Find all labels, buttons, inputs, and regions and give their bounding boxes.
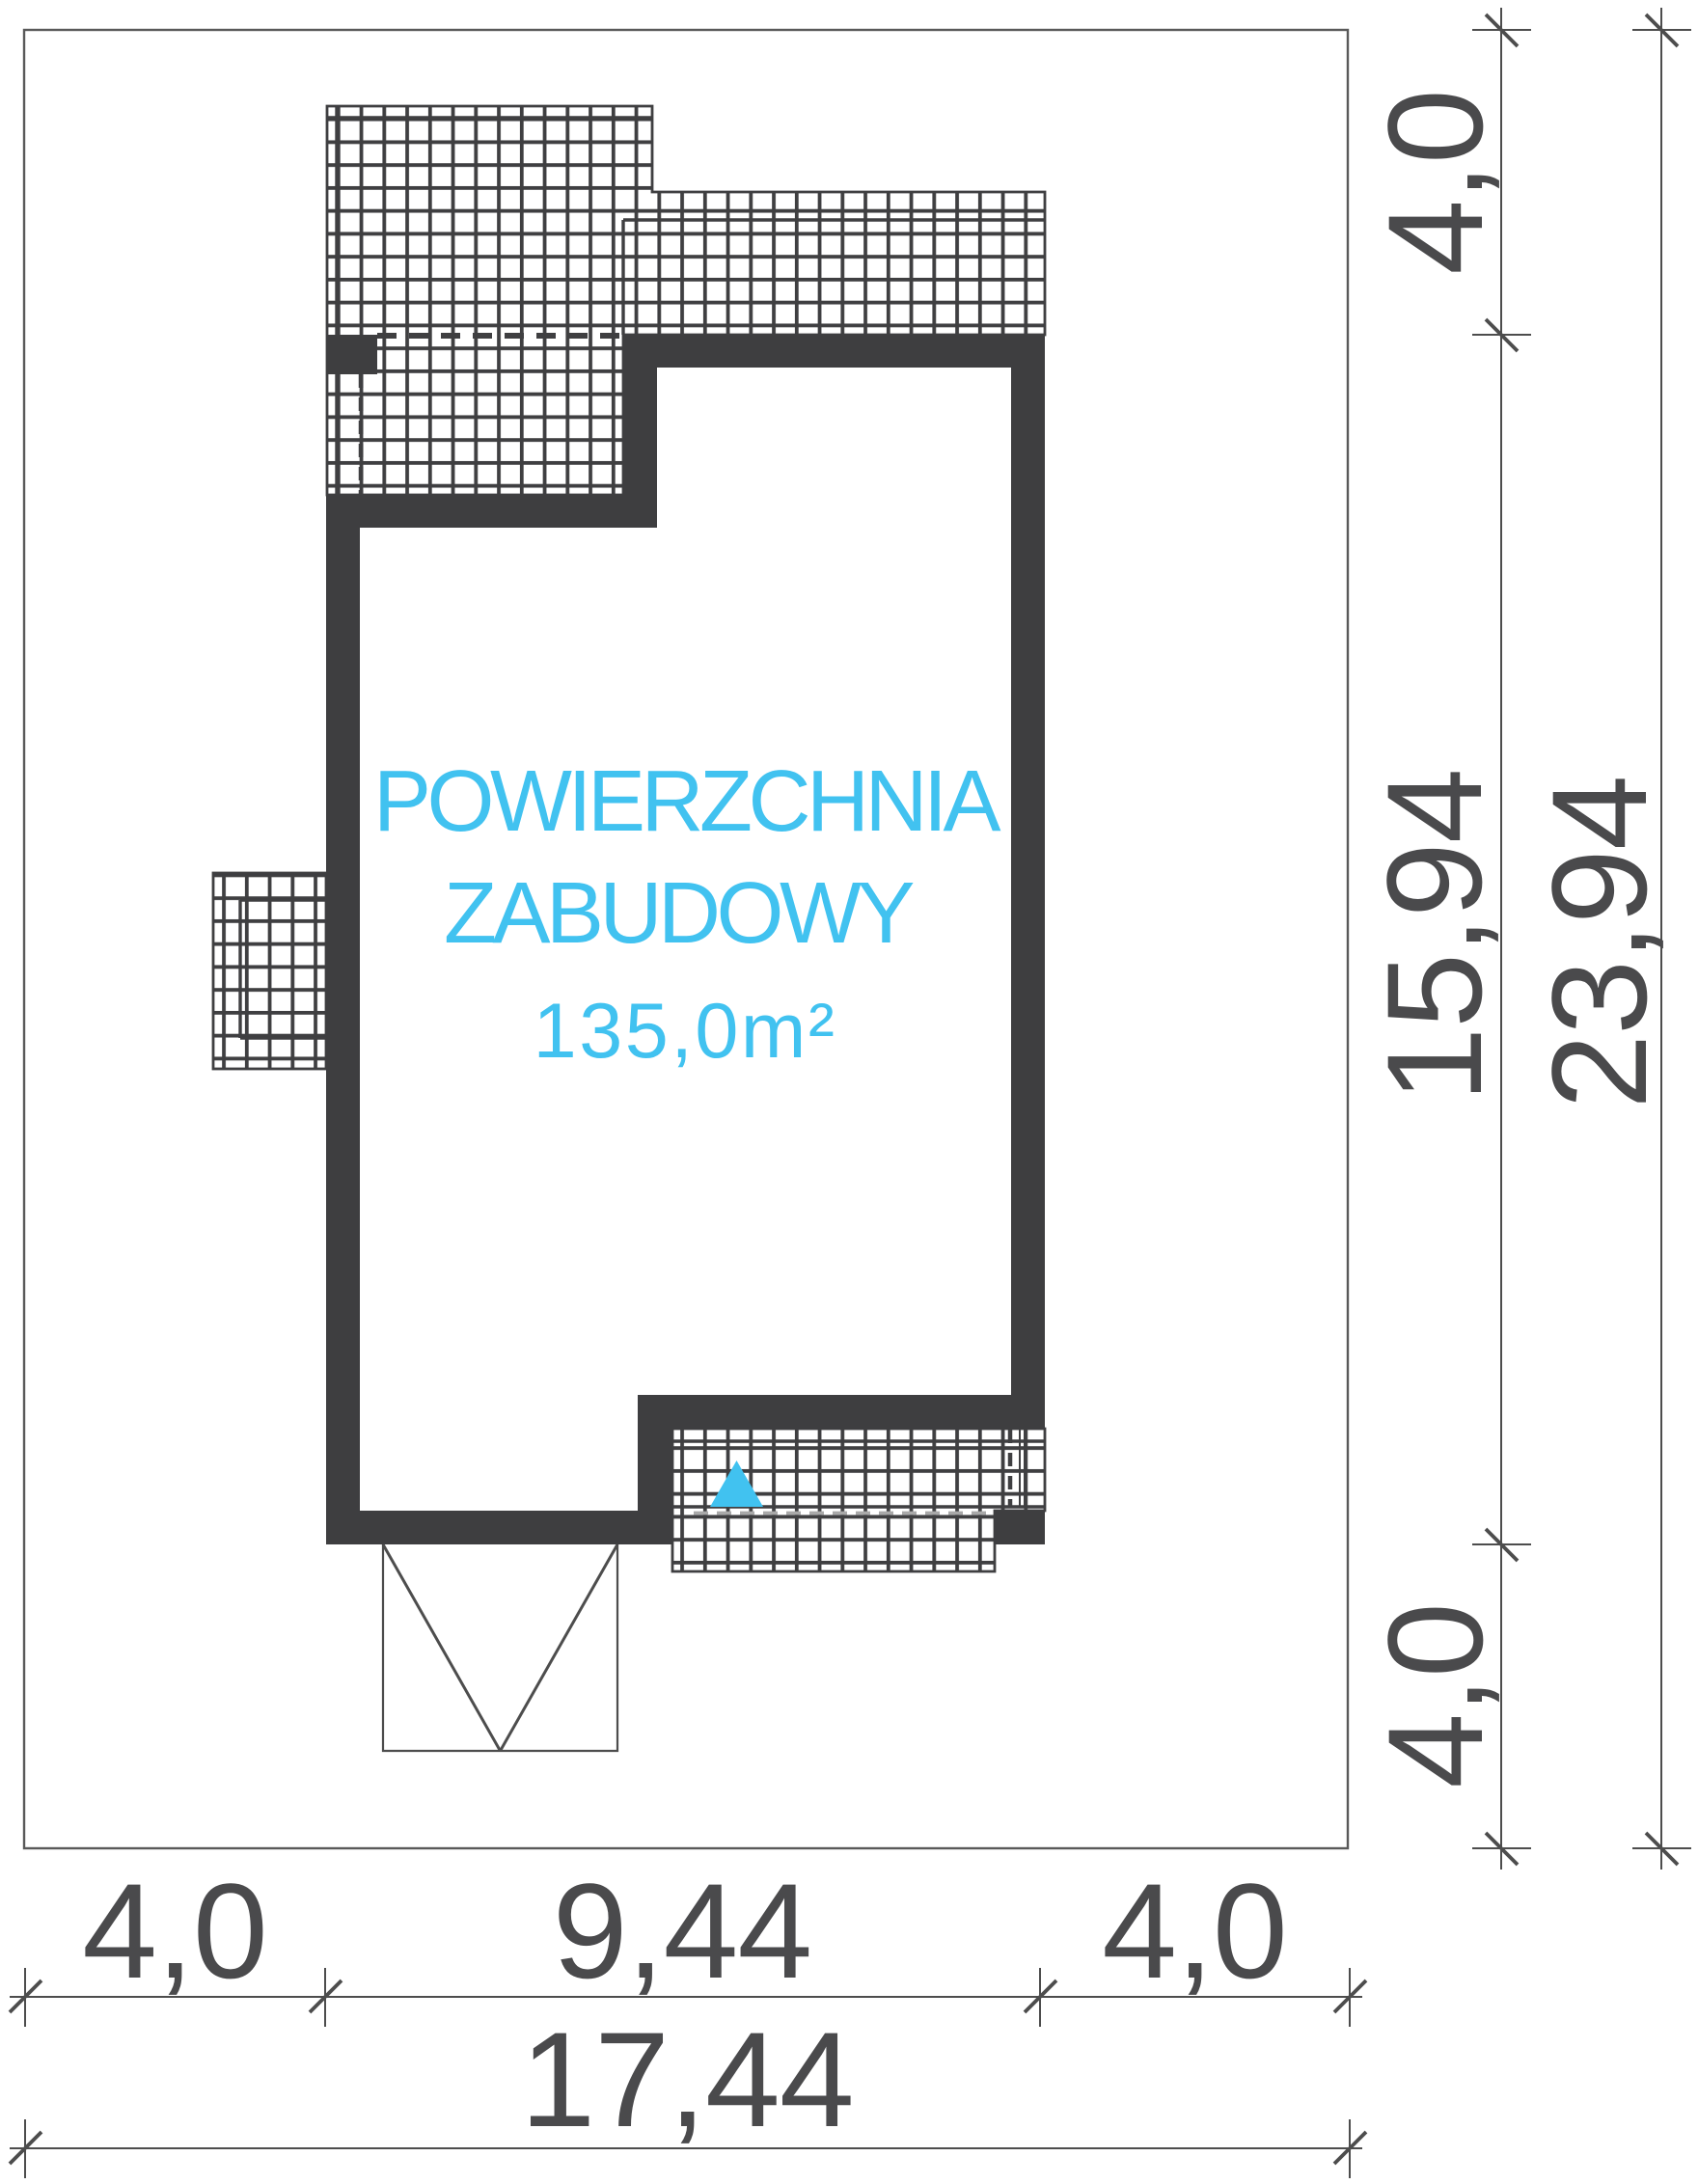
svg-text:4,0: 4,0 <box>82 1855 267 2007</box>
svg-text:4,0: 4,0 <box>1102 1855 1287 2007</box>
svg-text:4,0: 4,0 <box>1359 90 1511 275</box>
svg-text:ZABUDOWY: ZABUDOWY <box>444 865 914 962</box>
svg-text:POWIERZCHNIA: POWIERZCHNIA <box>373 753 1000 850</box>
svg-text:15,94: 15,94 <box>1358 769 1510 1102</box>
svg-text:135,0m²: 135,0m² <box>534 988 837 1075</box>
svg-text:17,44: 17,44 <box>520 2004 853 2155</box>
svg-text:4,0: 4,0 <box>1359 1603 1511 1788</box>
svg-text:23,94: 23,94 <box>1523 776 1675 1108</box>
svg-text:9,44: 9,44 <box>553 1855 811 2007</box>
